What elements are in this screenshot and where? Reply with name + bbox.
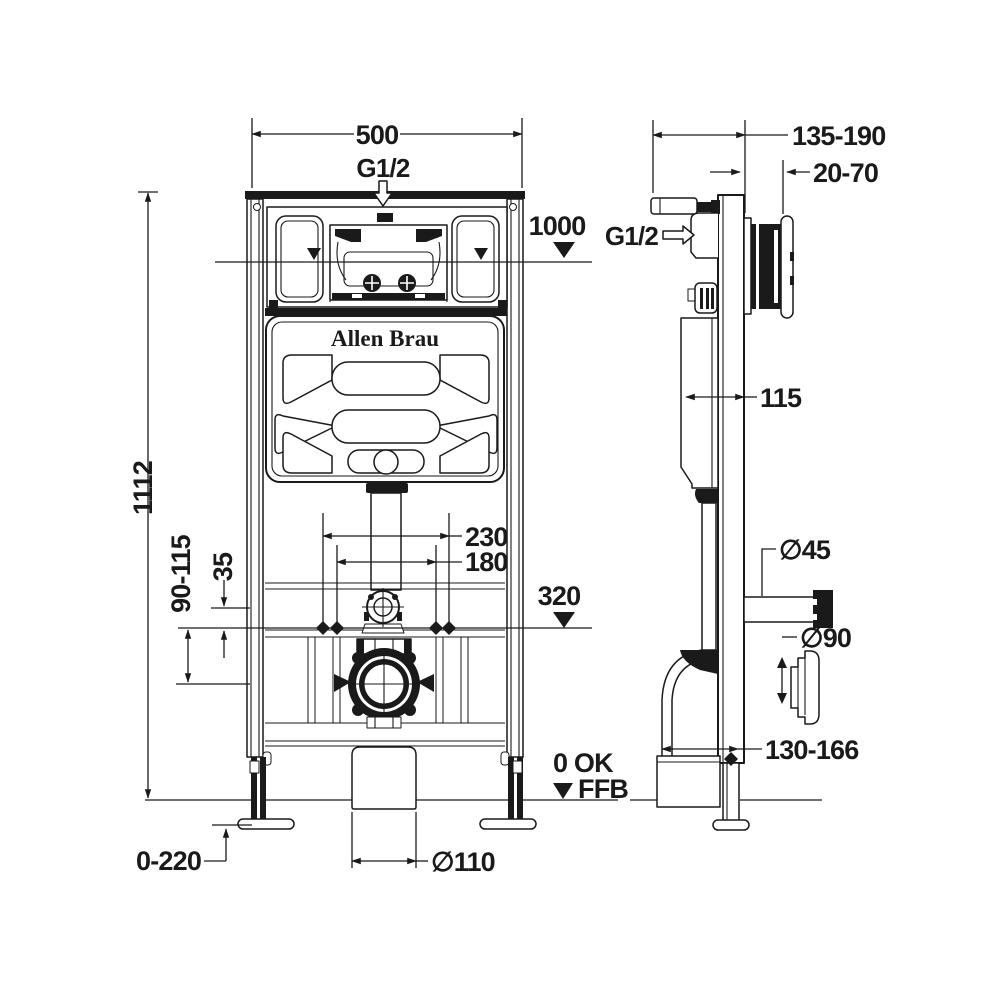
rim-level-label: 1000 <box>529 211 586 241</box>
strut <box>308 637 315 723</box>
dim-width-label: 500 <box>356 120 399 150</box>
flush-button-assembly <box>744 216 794 318</box>
level-triangle-icon <box>553 242 575 258</box>
cistern: Allen Brau <box>266 316 504 482</box>
ffb-triangle-icon <box>553 783 573 799</box>
floor-drain-label: ∅110 <box>431 847 495 877</box>
flush-pipe-label: ∅45 <box>779 535 831 565</box>
outlet-connector <box>777 651 819 724</box>
dim-floor-drain: ∅110 <box>352 812 495 877</box>
outlet-height-label: 130-166 <box>765 735 859 765</box>
offset-35-label: 35 <box>208 552 238 581</box>
actuator-depth-label: 20-70 <box>813 158 878 188</box>
side-flush-pipe-vertical <box>702 503 716 650</box>
height-label: 1112 <box>128 461 158 515</box>
dim-height-1112: 1112 <box>128 192 158 798</box>
strut <box>436 637 443 723</box>
brand-label: Allen Brau <box>331 326 439 351</box>
height-adjust-arrows-icon <box>777 657 787 704</box>
dim-outlet-diameter: ∅90 <box>782 623 851 653</box>
level-triangle-icon <box>553 612 575 628</box>
side-cistern <box>681 213 718 650</box>
down-arrow-icon <box>374 181 392 206</box>
outlet-level-label: 320 <box>538 581 581 611</box>
actuator-plate <box>781 216 793 318</box>
drain-elbow <box>657 650 720 807</box>
side-frame-bar <box>718 195 744 763</box>
right-arrow-icon <box>663 226 694 244</box>
side-foot-plate <box>713 820 749 830</box>
floor-drain-stub <box>352 747 416 809</box>
corner-screw-right <box>510 204 517 211</box>
technical-drawing-page: Allen Brau <box>0 0 1005 1005</box>
foot-plate-right <box>480 819 536 829</box>
elbow-base-box <box>657 756 720 807</box>
dim-inlet-side: G1/2 <box>605 221 694 251</box>
cistern-drain-hole <box>374 450 398 474</box>
outlet-diameter-label: ∅90 <box>800 623 851 653</box>
dim-flush-pipe: ∅45 <box>762 535 831 596</box>
inlet-side-label: G1/2 <box>605 221 659 251</box>
dim-offset-35: 35 <box>208 552 250 658</box>
fixing-180-label: 180 <box>465 547 508 577</box>
drain-offset-label: 90-115 <box>166 534 196 613</box>
foot-plate-left <box>238 819 294 829</box>
strut <box>461 637 468 723</box>
drain-assembly <box>334 639 434 728</box>
cistern-depth-label: 115 <box>760 383 802 413</box>
installation-frame-drawing: Allen Brau <box>0 0 1005 1005</box>
inlet-flange <box>362 588 404 633</box>
ffb-label: FFB <box>578 774 628 804</box>
dim-foot-adjust: 0-220 <box>136 825 252 876</box>
fill-valve-lever <box>651 198 720 214</box>
inlet-nipple <box>377 213 393 222</box>
front-view: Allen Brau <box>238 191 536 829</box>
frame-depth-label: 135-190 <box>792 121 886 151</box>
corner-screw-left <box>254 204 261 211</box>
foot-adjust-label: 0-220 <box>136 846 201 876</box>
inlet-front-label: G1/2 <box>356 153 410 183</box>
